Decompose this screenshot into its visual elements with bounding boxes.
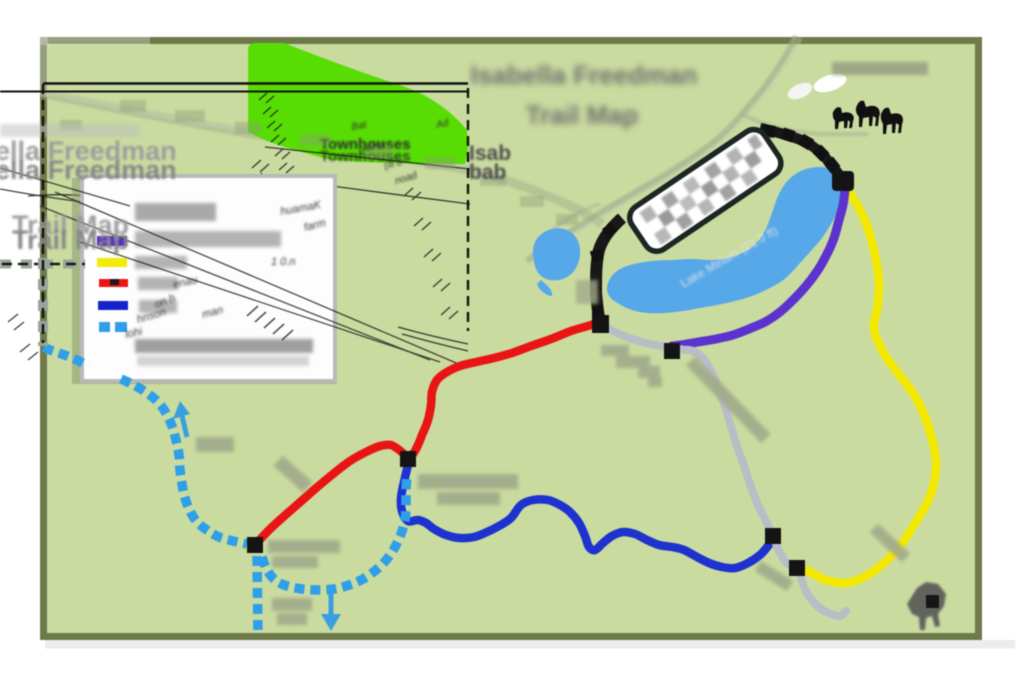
svg-text:Trail Map: Trail Map	[12, 225, 129, 255]
svg-text:Isabella Freedman: Isabella Freedman	[0, 155, 177, 185]
svg-text:bab: bab	[469, 161, 506, 184]
svg-text:Trail Map: Trail Map	[526, 100, 639, 130]
svg-text:1 0.n: 1 0.n	[271, 256, 295, 268]
svg-text:Isabella Freedman: Isabella Freedman	[471, 60, 698, 90]
